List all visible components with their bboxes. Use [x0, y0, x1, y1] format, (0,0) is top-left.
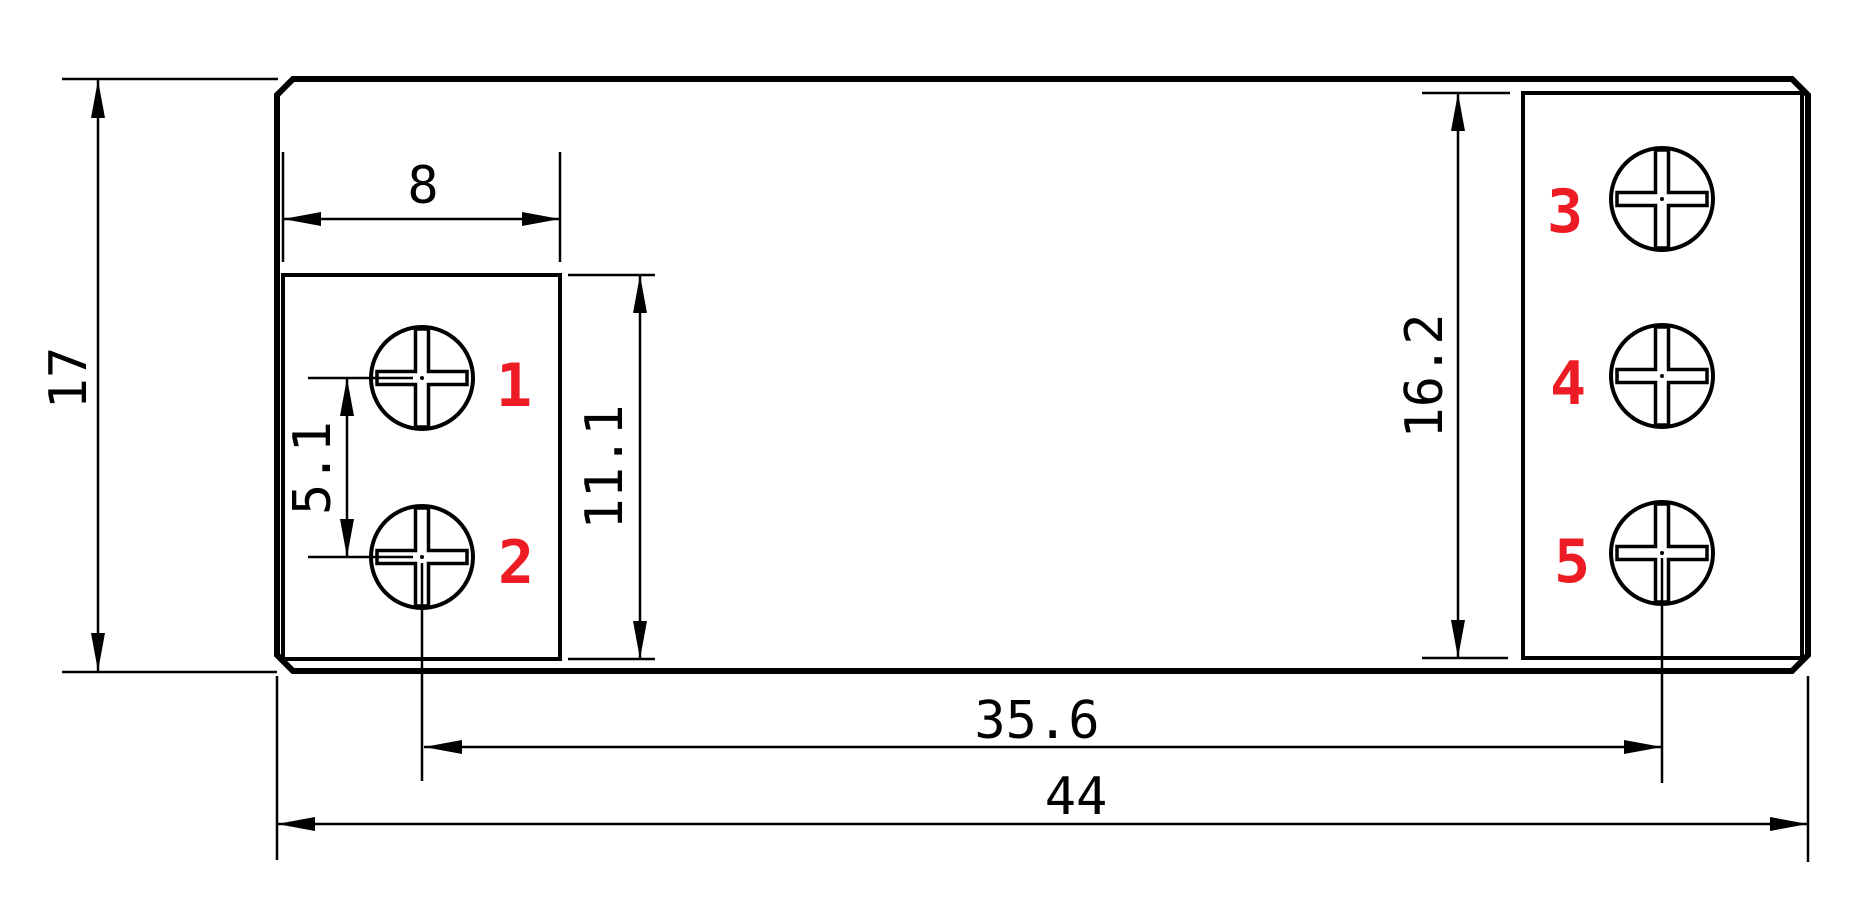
dim-value-overall-width: 44: [1045, 767, 1108, 827]
terminal-label-4: 4: [1550, 349, 1586, 419]
arrowhead-up: [1451, 93, 1465, 131]
screw-center-dot: [1660, 551, 1664, 555]
drawing-canvas: 17 8 5.1 11.1 16.2 35.6: [0, 0, 1866, 901]
screw-terminal-3: [1611, 148, 1713, 250]
arrowhead-left: [283, 212, 321, 226]
screw-center-dot: [420, 376, 424, 380]
dim-value-right-block-height: 16.2: [1395, 313, 1455, 438]
dim-right-block-height: 16.2: [1395, 93, 1510, 658]
dim-left-block-width: 8: [283, 152, 560, 262]
arrowhead-down: [91, 633, 105, 671]
screw-terminal-4: [1611, 325, 1713, 427]
terminal-label-2: 2: [498, 528, 534, 598]
terminal-label-5: 5: [1554, 527, 1590, 597]
dim-overall-height: 17: [39, 79, 278, 672]
arrowhead-up: [91, 80, 105, 118]
screw-center-dot: [1660, 197, 1664, 201]
arrowhead-right: [1624, 740, 1662, 754]
arrowhead-down: [340, 519, 354, 557]
arrowhead-right: [522, 212, 560, 226]
arrowhead-up: [340, 378, 354, 416]
terminal-label-3: 3: [1547, 177, 1583, 247]
screw-center-dot: [420, 555, 424, 559]
dim-left-block-height: 11.1: [568, 275, 655, 659]
screw-center-dot: [1660, 374, 1664, 378]
dim-hole-pitch-horizontal: 35.6: [424, 691, 1662, 754]
dim-left-hole-pitch: 5.1: [283, 378, 354, 557]
arrowhead-left: [424, 740, 462, 754]
arrowhead-down: [633, 621, 647, 659]
terminal-label-1: 1: [496, 351, 532, 421]
arrowhead-right: [1770, 817, 1808, 831]
dim-value-hole-pitch-horizontal: 35.6: [974, 691, 1099, 751]
dimension-drawing: 17 8 5.1 11.1 16.2 35.6: [0, 0, 1866, 901]
dim-value-left-block-height: 11.1: [575, 404, 635, 529]
dim-value-left-hole-pitch: 5.1: [283, 421, 343, 515]
dim-value-left-block-width: 8: [407, 156, 438, 216]
arrowhead-up: [633, 275, 647, 313]
arrowhead-down: [1451, 620, 1465, 658]
dim-value-overall-height: 17: [39, 347, 99, 410]
arrowhead-left: [277, 817, 315, 831]
